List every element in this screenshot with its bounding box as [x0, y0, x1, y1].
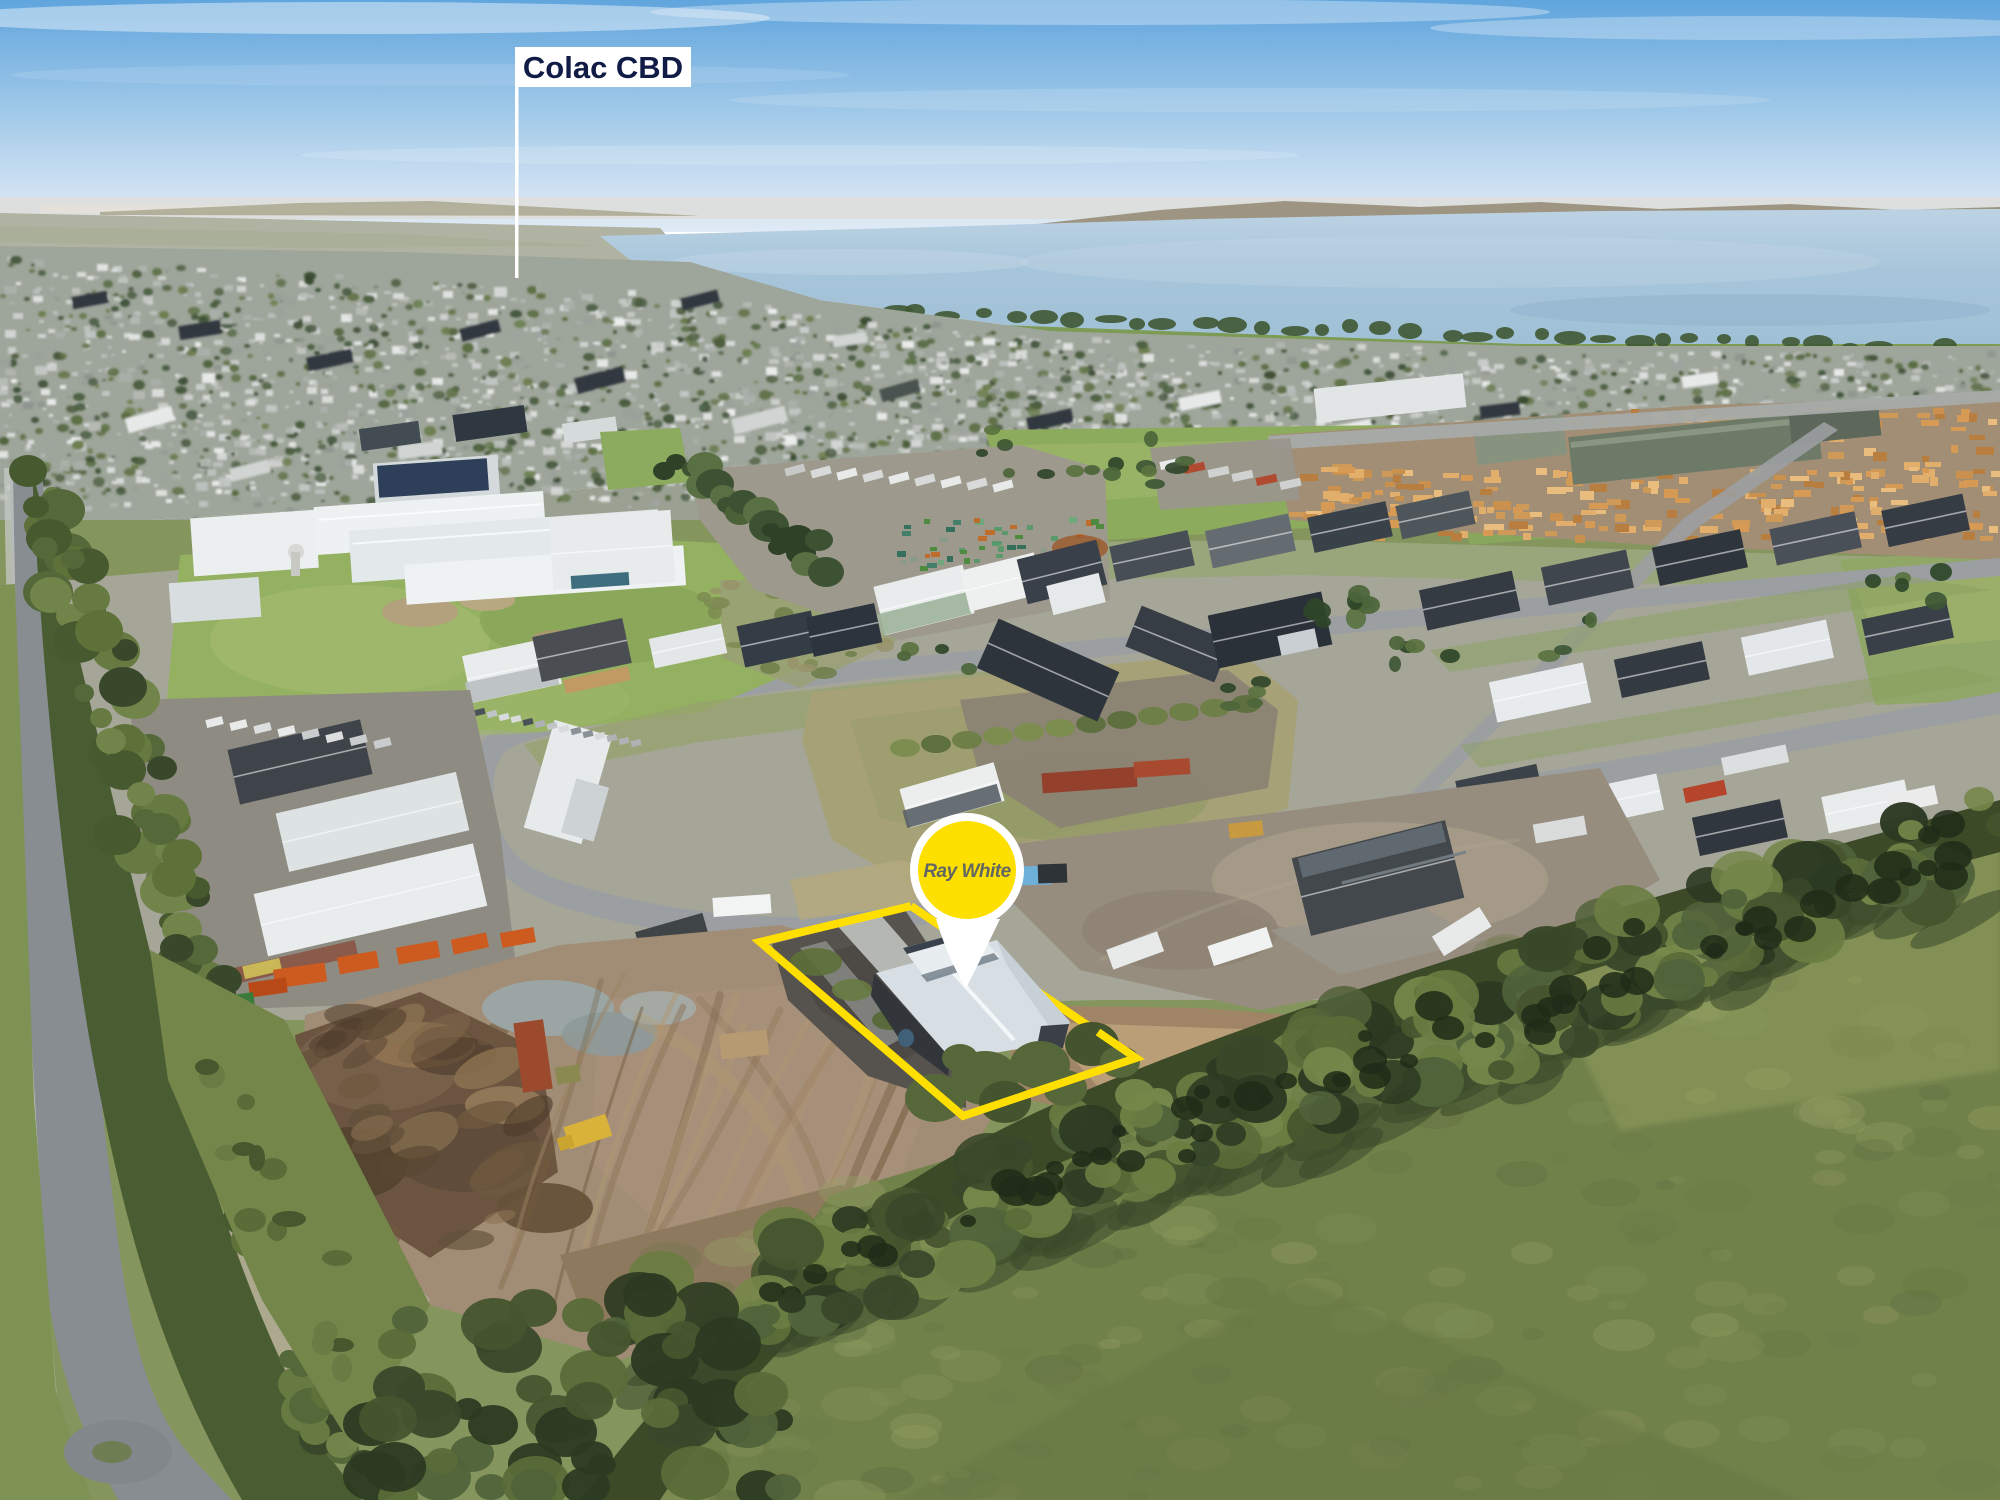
- svg-text:Colac CBD: Colac CBD: [523, 50, 683, 85]
- svg-text:Ray White: Ray White: [923, 861, 1011, 882]
